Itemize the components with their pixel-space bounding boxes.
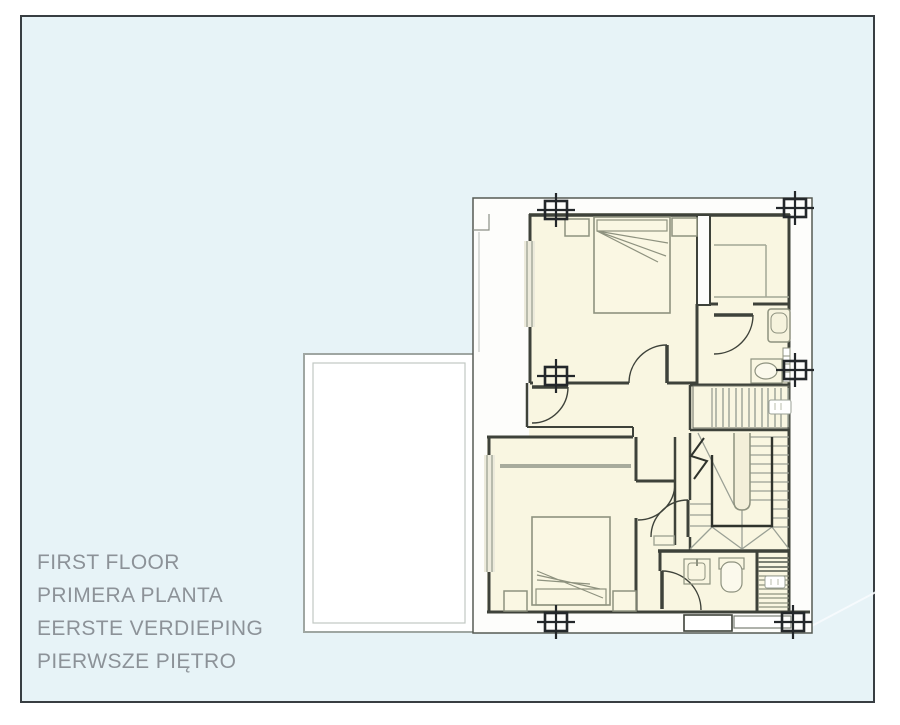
terrace-outline xyxy=(304,354,474,632)
nightstand xyxy=(565,219,589,236)
nightstand xyxy=(504,591,527,611)
floor-labels: FIRST FLOOR PRIMERA PLANTA EERSTE VERDIE… xyxy=(37,552,263,684)
watermark-line xyxy=(806,592,876,629)
window-bedroom-2 xyxy=(484,455,495,572)
floor-label-en: FIRST FLOOR xyxy=(37,552,263,573)
toilet-bowl xyxy=(721,562,742,592)
duct-chase xyxy=(697,215,710,305)
nightstand xyxy=(672,218,697,236)
architectural-sheet: FIRST FLOOR PRIMERA PLANTA EERSTE VERDIE… xyxy=(0,0,900,725)
floor-label-pl: PIERWSZE PIĘTRO xyxy=(37,651,263,672)
nightstand xyxy=(613,591,636,611)
window-bedroom-1 xyxy=(524,241,535,327)
floor-label-es: PRIMERA PLANTA xyxy=(37,585,263,606)
floor-label-nl: EERSTE VERDIEPING xyxy=(37,618,263,639)
sink-basin xyxy=(755,363,777,379)
